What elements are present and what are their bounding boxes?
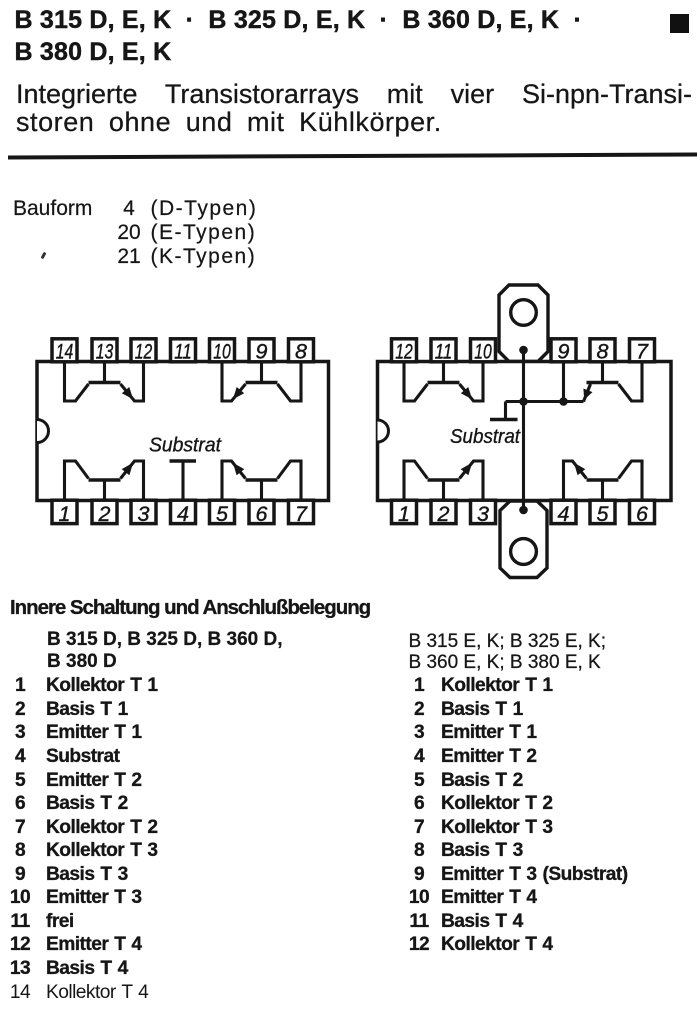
svg-text:2: 2 — [98, 502, 111, 526]
svg-text:1: 1 — [398, 502, 410, 526]
svg-text:Substrat: Substrat — [450, 425, 521, 448]
svg-text:6: 6 — [256, 502, 268, 526]
svg-text:3: 3 — [477, 502, 489, 526]
svg-text:11: 11 — [174, 340, 192, 364]
svg-text:5: 5 — [597, 502, 610, 526]
svg-text:7: 7 — [295, 502, 308, 526]
svg-text:Substrat: Substrat — [149, 434, 222, 457]
svg-text:1: 1 — [59, 502, 71, 526]
svg-text:12: 12 — [395, 340, 413, 364]
svg-text:10: 10 — [213, 340, 231, 364]
svg-text:13: 13 — [96, 340, 114, 364]
svg-text:12: 12 — [135, 340, 153, 364]
svg-text:8: 8 — [597, 340, 609, 364]
svg-text:2: 2 — [437, 502, 450, 526]
svg-text:11: 11 — [435, 340, 453, 364]
svg-text:14: 14 — [56, 340, 74, 364]
svg-text:5: 5 — [216, 502, 229, 526]
svg-text:4: 4 — [177, 502, 189, 526]
svg-text:9: 9 — [558, 340, 570, 364]
svg-text:9: 9 — [256, 340, 268, 364]
svg-text:10: 10 — [474, 340, 492, 364]
svg-text:6: 6 — [636, 502, 648, 526]
svg-text:3: 3 — [138, 502, 150, 526]
svg-text:7: 7 — [636, 340, 649, 364]
svg-text:8: 8 — [295, 340, 307, 364]
svg-text:4: 4 — [558, 502, 570, 526]
